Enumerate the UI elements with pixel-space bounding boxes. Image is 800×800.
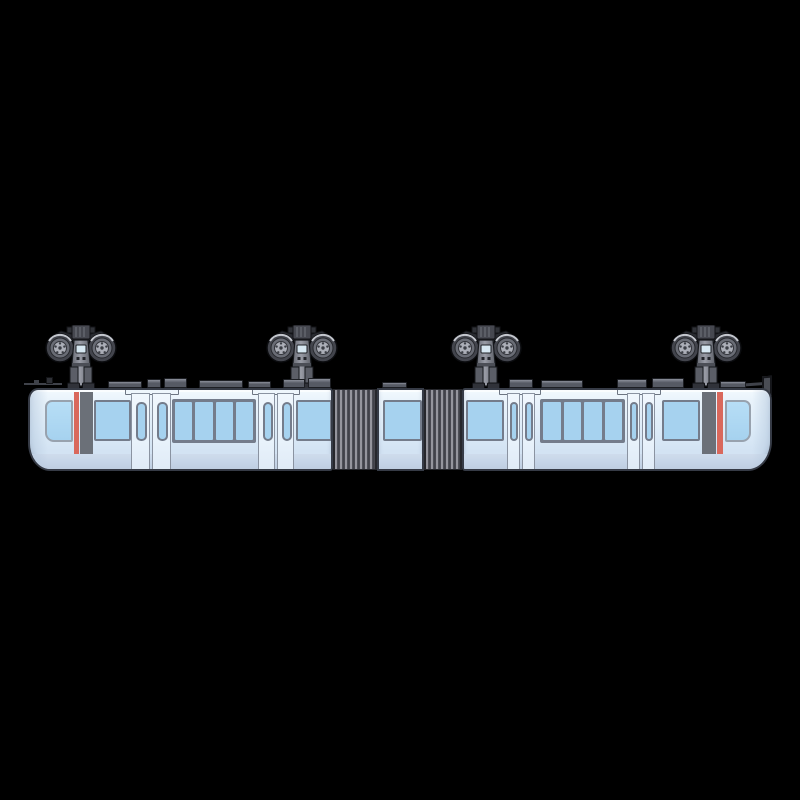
roof-equipment-box — [108, 381, 142, 388]
passenger-window — [466, 400, 504, 441]
door-leaf — [522, 393, 535, 471]
roof-equipment-box — [308, 378, 331, 388]
black-background — [0, 0, 800, 800]
door-window — [630, 402, 638, 441]
lower-skirt-band — [379, 454, 422, 471]
door-leaf — [131, 393, 150, 471]
rear-car-body — [462, 388, 772, 471]
roof-equipment-box — [248, 381, 271, 388]
cab-windshield — [45, 400, 73, 442]
gangway-bellows — [424, 389, 462, 470]
window-pane — [543, 402, 561, 440]
roof-equipment-box — [509, 379, 533, 388]
door-leaf — [152, 393, 171, 471]
roof-antenna-icon — [34, 380, 39, 383]
passenger-window — [296, 400, 332, 441]
roof-equipment-box — [199, 380, 243, 388]
door-window — [136, 402, 147, 441]
roof-equipment-box — [541, 380, 583, 388]
roof-equipment-box — [720, 381, 746, 388]
roof-equipment-box — [617, 379, 647, 388]
door-window — [282, 402, 292, 441]
bogie-icon — [45, 325, 117, 391]
roof-antenna-icon — [24, 383, 62, 385]
window-band — [172, 399, 256, 443]
cab-door-pillar — [80, 392, 93, 454]
window-pane — [605, 402, 623, 440]
roof-equipment-box — [164, 378, 187, 388]
door-window — [525, 402, 533, 441]
door-window — [263, 402, 273, 441]
door-leaf — [507, 393, 520, 471]
gangway-bellows — [333, 389, 377, 470]
door-window — [510, 402, 518, 441]
window-pane — [564, 402, 582, 440]
front-car-body — [28, 388, 333, 471]
roof-equipment-box — [652, 378, 684, 388]
red-accent-stripe — [717, 392, 723, 454]
passenger-window — [383, 400, 422, 441]
passenger-window — [662, 400, 700, 441]
red-accent-stripe — [74, 392, 79, 454]
window-pane — [584, 402, 602, 440]
door-leaf — [258, 393, 275, 471]
cab-windshield — [725, 400, 751, 442]
door-window — [645, 402, 653, 441]
cab-door-pillar — [702, 392, 716, 454]
middle-module-body — [377, 388, 424, 471]
window-pane — [236, 402, 253, 440]
door-leaf — [277, 393, 294, 471]
door-window — [157, 402, 168, 441]
door-leaf — [642, 393, 655, 471]
roof-equipment-box — [283, 379, 305, 388]
suspended-monorail-train — [28, 325, 772, 475]
window-pane — [195, 402, 212, 440]
roof-antenna-icon — [46, 377, 53, 384]
window-pane — [216, 402, 233, 440]
nose-shading — [752, 390, 770, 469]
window-pane — [175, 402, 192, 440]
roof-equipment-box — [147, 379, 161, 388]
window-band — [540, 399, 625, 443]
passenger-window — [94, 400, 131, 441]
door-leaf — [627, 393, 640, 471]
